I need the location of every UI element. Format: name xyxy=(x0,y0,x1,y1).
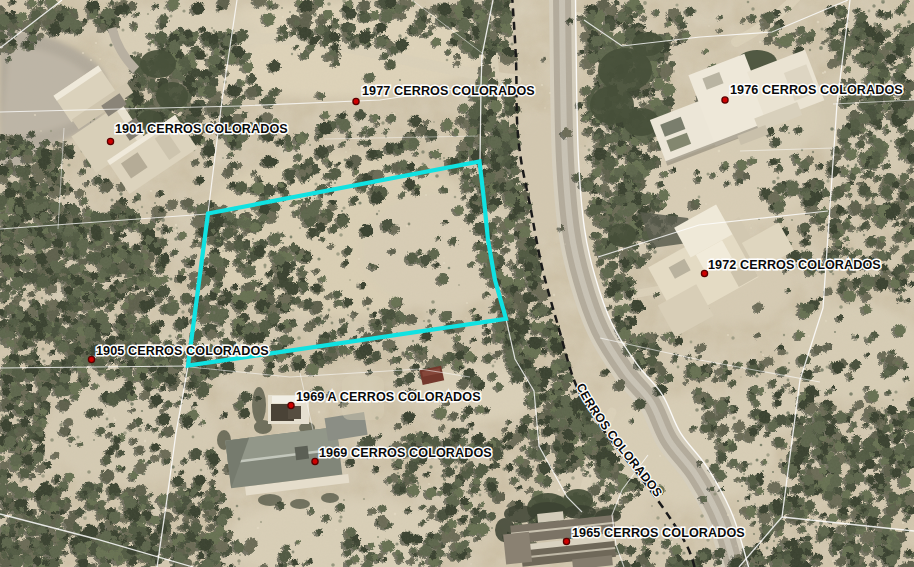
svg-text:1901 CERROS COLORADOS: 1901 CERROS COLORADOS xyxy=(115,122,288,136)
svg-text:1905 CERROS COLORADOS: 1905 CERROS COLORADOS xyxy=(96,344,269,358)
svg-text:1976 CERROS COLORADOS: 1976 CERROS COLORADOS xyxy=(730,83,903,97)
svg-text:1969 CERROS COLORADOS: 1969 CERROS COLORADOS xyxy=(319,446,492,460)
svg-text:1972 CERROS COLORADOS: 1972 CERROS COLORADOS xyxy=(708,258,881,272)
svg-text:1969 A CERROS COLORADOS: 1969 A CERROS COLORADOS xyxy=(296,390,481,404)
svg-text:1965 CERROS COLORADOS: 1965 CERROS COLORADOS xyxy=(572,526,745,540)
svg-text:1977 CERROS COLORADOS: 1977 CERROS COLORADOS xyxy=(362,84,535,98)
